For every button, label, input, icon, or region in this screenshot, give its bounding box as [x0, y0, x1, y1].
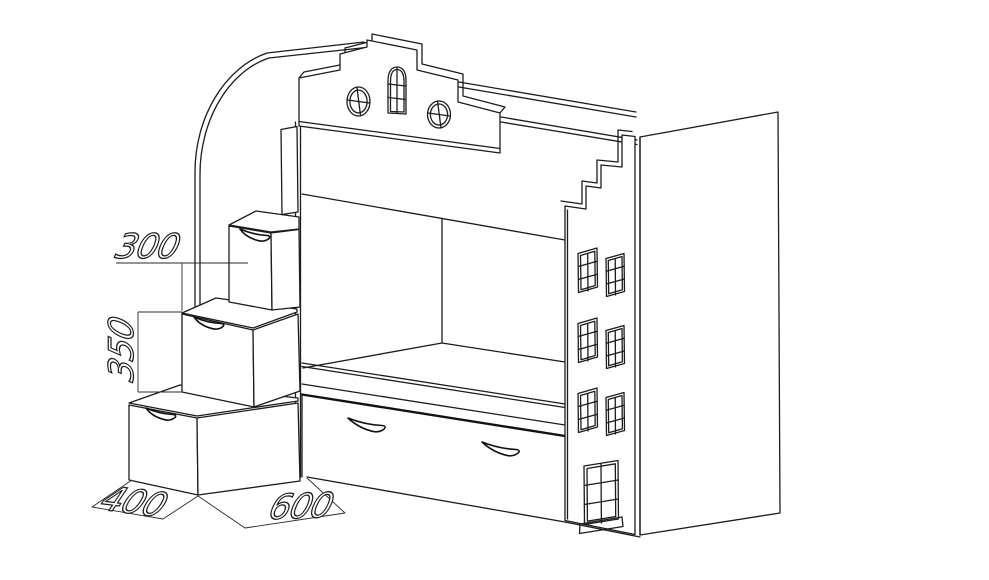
platform-front-top-edge	[302, 363, 565, 404]
drawer-handle-left[interactable]	[348, 418, 385, 432]
step-box-bottom	[129, 385, 300, 495]
dimension-350: 350	[102, 312, 183, 392]
drawer-handle-right[interactable]	[482, 442, 519, 456]
technical-drawing-canvas: 300 350 400 600	[0, 0, 989, 580]
stair-support-board	[281, 127, 298, 215]
bunk-bed-drawing: 300 350 400 600	[0, 0, 989, 580]
dimension-label-600: 600	[265, 486, 337, 528]
step-box-top	[229, 127, 300, 311]
bunk-interior	[302, 194, 565, 368]
gable-window-row3-col2	[606, 393, 625, 436]
upper-bunk-front-rail-edge	[302, 194, 565, 240]
right-side-panel	[640, 112, 780, 535]
gable-window-row1-col2	[606, 254, 625, 297]
platform-back-edge-left	[303, 343, 442, 368]
dimension-label-300: 300	[112, 227, 184, 266]
front-rail-bottom-edge	[302, 384, 565, 425]
platform-back-edge-right	[442, 343, 565, 362]
gable-window-row2-col2	[606, 326, 625, 369]
right-gable-facade	[561, 130, 640, 535]
step-box-middle	[182, 298, 300, 407]
dimension-300: 300	[112, 227, 248, 311]
dimension-label-350: 350	[102, 313, 141, 385]
